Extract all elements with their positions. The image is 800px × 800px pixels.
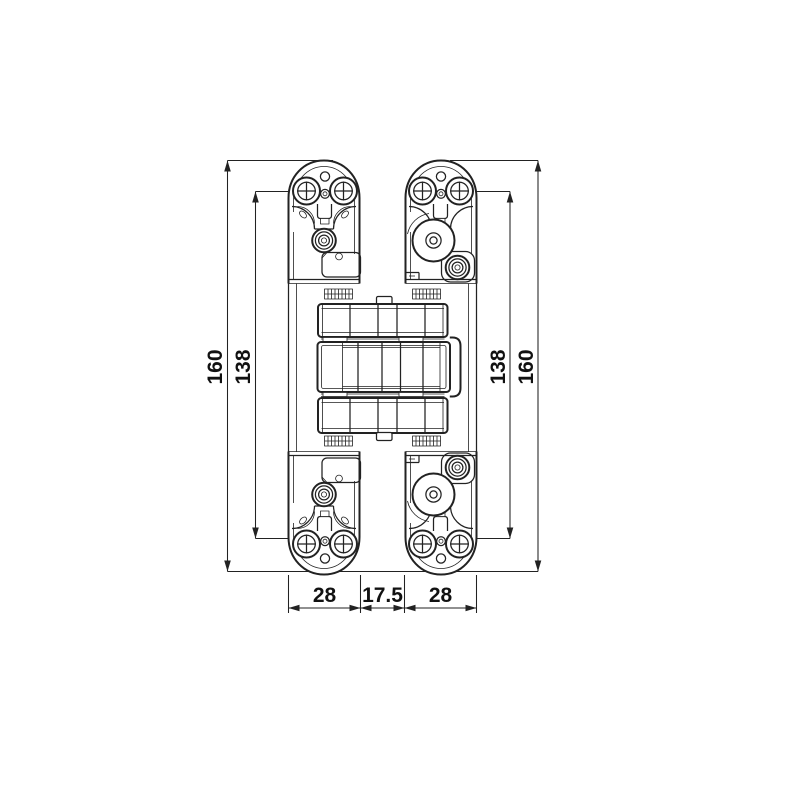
hinge-technical-drawing: 160 138 138 160 28 17.5 28 (0, 0, 800, 800)
dim-label-right-138: 138 (487, 349, 510, 384)
upper-arm-heads (289, 161, 477, 300)
dim-label-left-160: 160 (204, 349, 227, 384)
lower-arm-heads (289, 436, 477, 575)
hinge-part (289, 161, 477, 575)
knuckle-row-middle (318, 342, 451, 392)
hinge-technical-drawing-page: 160 138 138 160 28 17.5 28 (0, 0, 800, 800)
knuckle-stack (318, 297, 451, 441)
dim-label-right-28: 28 (429, 584, 453, 607)
dim-label-gap-17-5: 17.5 (362, 584, 403, 607)
dim-label-left-28: 28 (313, 584, 337, 607)
knuckle-row-top (318, 304, 448, 337)
knuckle-row-bottom (318, 398, 448, 433)
dim-label-right-160: 160 (515, 349, 538, 384)
clip-bracket (450, 338, 461, 397)
dim-label-left-138: 138 (232, 349, 255, 384)
knuckle-bottom-tab (377, 433, 393, 441)
